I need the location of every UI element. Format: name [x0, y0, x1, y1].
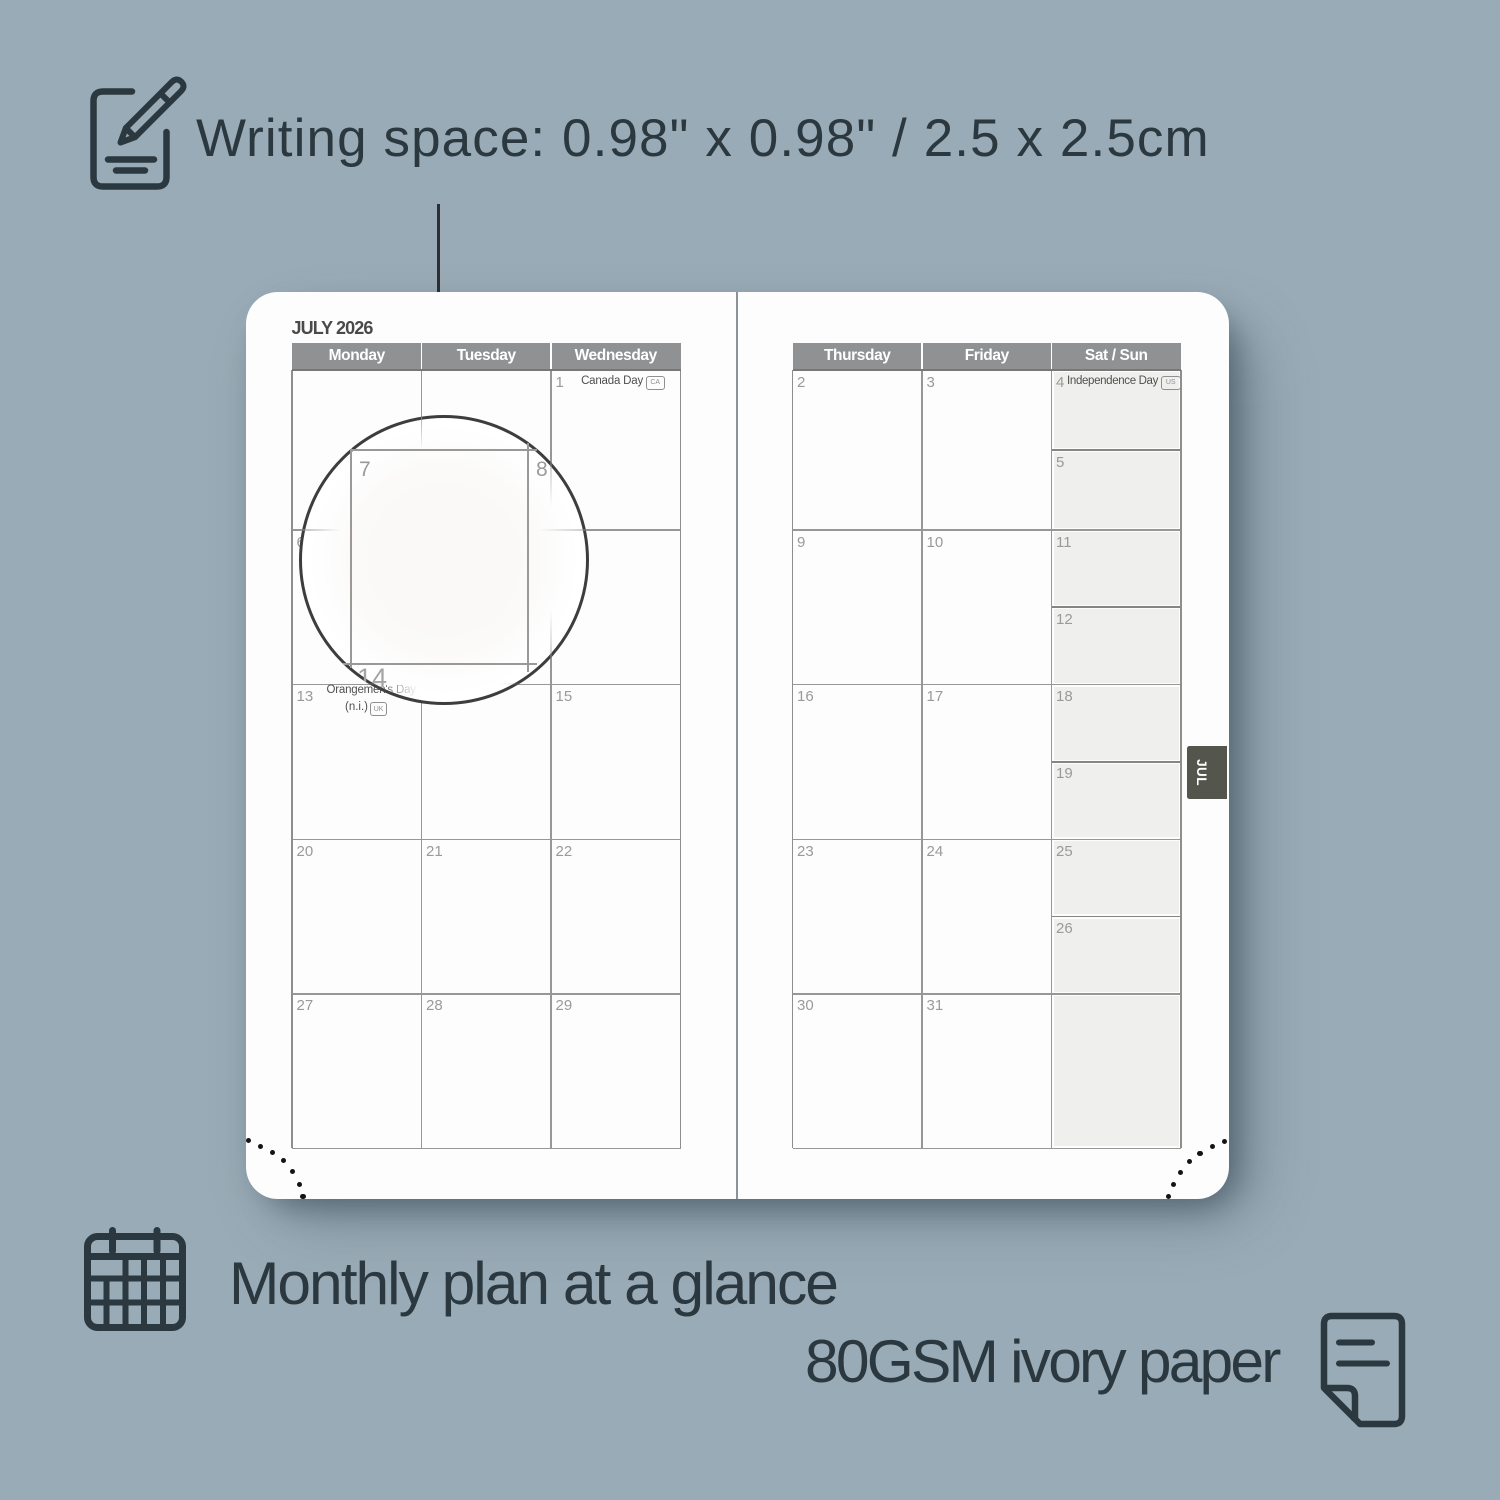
svg-text:JUL: JUL — [1193, 759, 1208, 786]
